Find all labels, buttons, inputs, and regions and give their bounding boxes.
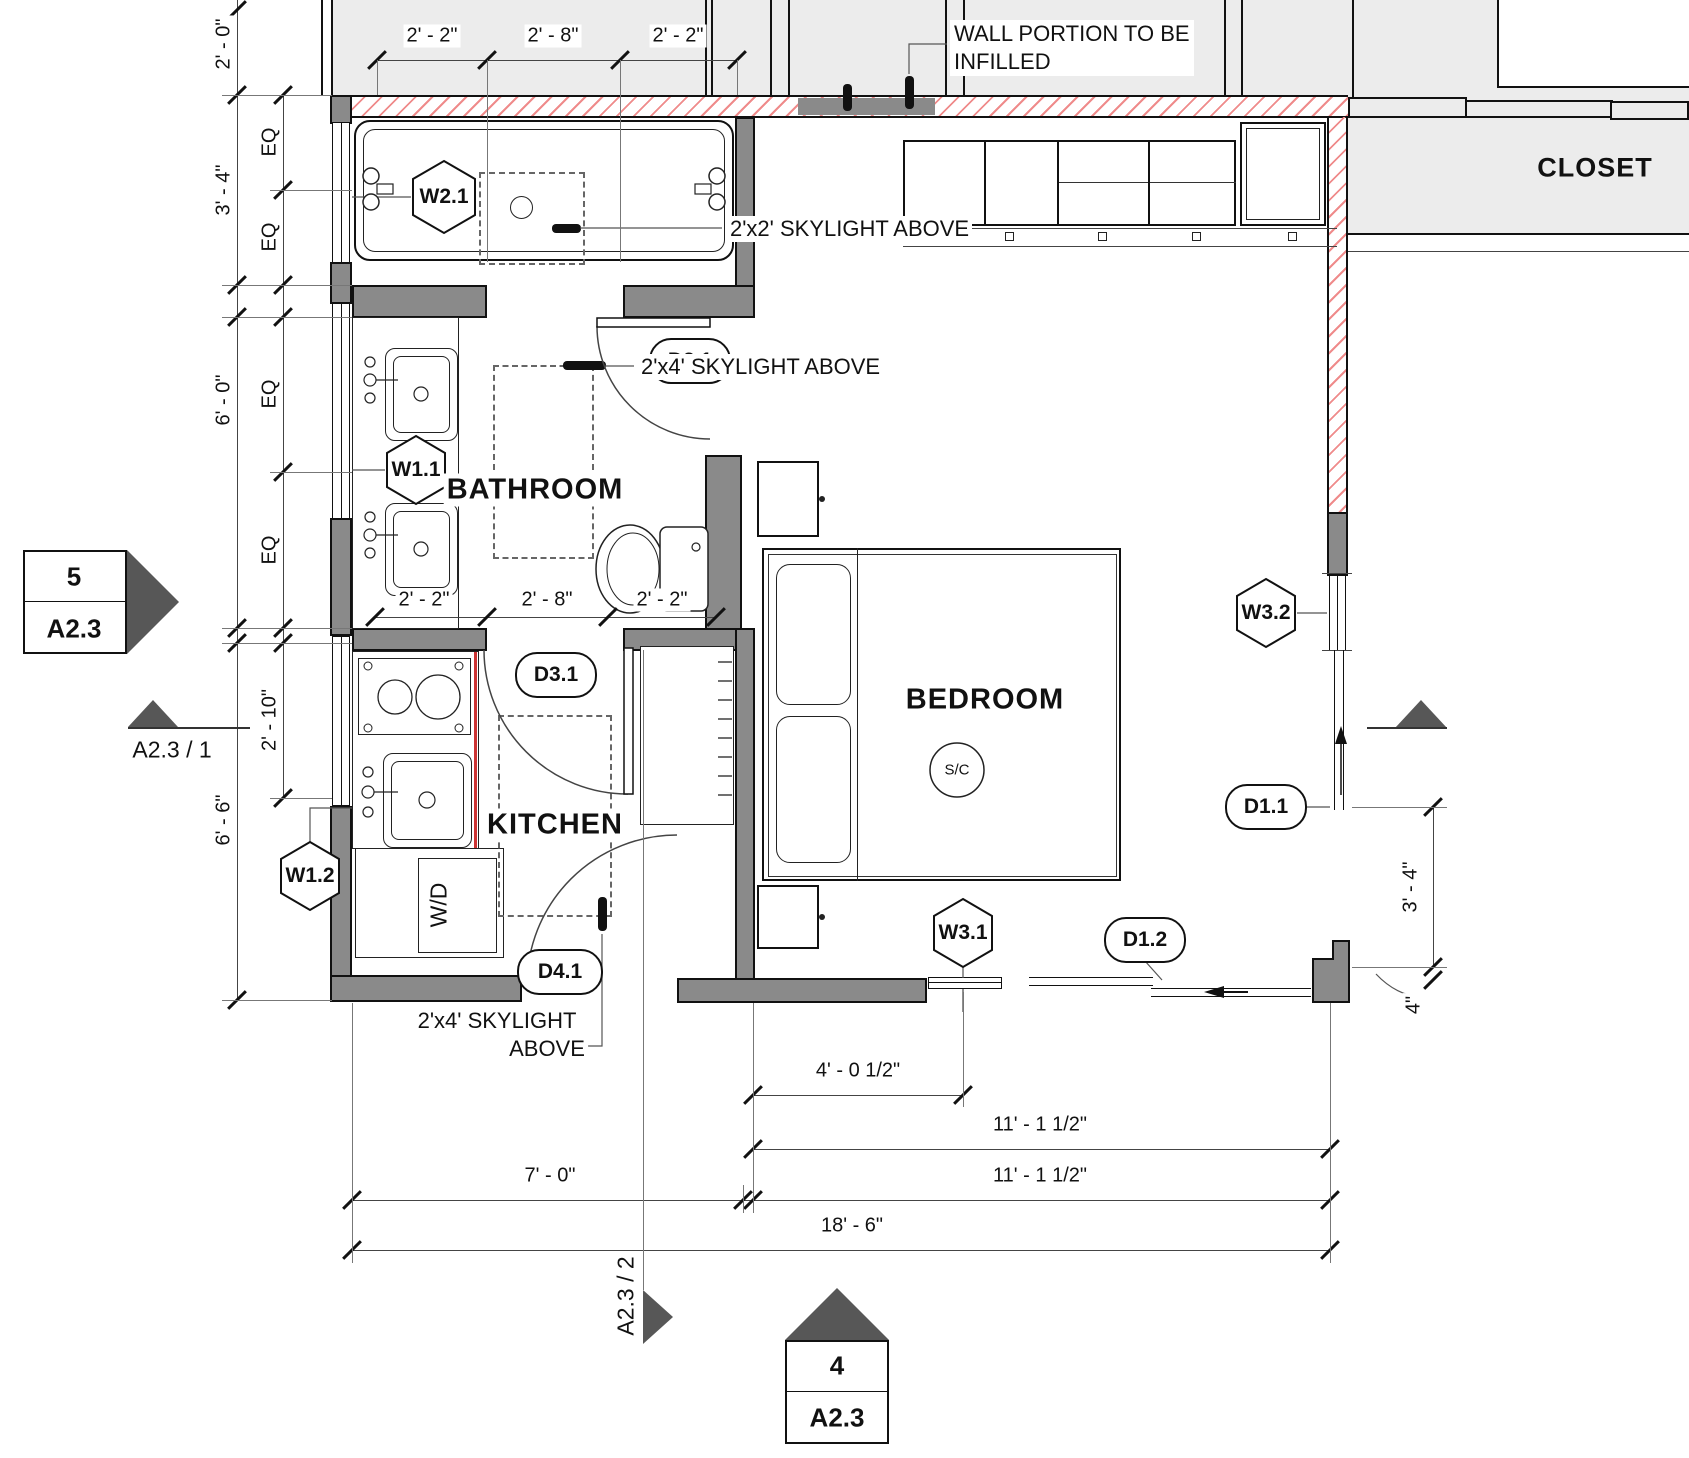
section-marker-5-sheet: A2.3 (44, 614, 105, 645)
dim-witness (743, 1185, 744, 1213)
dim-mid-0: 2' - 2" (396, 589, 453, 612)
dim-witness (620, 60, 621, 262)
nightstand-upper (757, 461, 819, 537)
leader-anchor (563, 361, 606, 370)
closet-bottom-wall (1348, 233, 1689, 235)
pillow (776, 716, 851, 863)
leader-4in (1376, 974, 1409, 995)
door-tag-d11: D1.1 (1225, 784, 1307, 830)
existing-wall-line (1241, 0, 1243, 97)
window-w21 (332, 122, 350, 263)
dim-bottom-1: 11' - 1 1/2" (990, 1114, 1090, 1137)
note-wall-infill-line2: INFILLED (954, 48, 1190, 76)
section-arrow-line (1367, 727, 1447, 729)
appliance-cabinet-inner (1246, 128, 1320, 220)
dim-top-0: 2' - 2" (404, 25, 461, 48)
room-label-bedroom: BEDROOM (903, 684, 1067, 717)
dim-witness (963, 992, 964, 1107)
dim-right-1: 4" (1403, 993, 1426, 1017)
kitchen-sink-inner (391, 761, 464, 840)
window-w32-sill (1322, 573, 1352, 574)
dim-witness (377, 60, 378, 95)
dim-bottom-3: 11' - 1 1/2" (990, 1165, 1090, 1188)
window-tag-w31: W3.1 (935, 921, 990, 945)
dim-bottom-0: 4' - 0 1/2" (813, 1060, 903, 1083)
dim-witness (222, 643, 352, 644)
counter-bracket (1005, 232, 1014, 241)
hatched-wall-right (1327, 117, 1348, 513)
right-wall-pier (1327, 512, 1348, 576)
section-marker-4-number: 4 (827, 1351, 847, 1382)
cabinet (984, 140, 1059, 226)
section-marker-divider (23, 601, 127, 602)
section-arrow-right (1395, 700, 1447, 728)
closet-wall (1610, 101, 1689, 120)
leader-anchor (552, 224, 581, 233)
dim-left-inner-3: EQ (259, 533, 282, 568)
skylight-2x4-bath-dashed (493, 365, 594, 559)
wall-infill-portion (798, 98, 935, 115)
left-wall-pier (330, 518, 352, 636)
bedroom-bottom-wall (677, 978, 927, 1003)
window-tag-w32: W3.2 (1238, 601, 1293, 625)
section-marker-a231-arrow (128, 700, 178, 727)
window-w31 (928, 977, 1002, 989)
counter-red-edge (474, 652, 477, 848)
closet-opening (1467, 100, 1613, 118)
tub-drain (510, 196, 533, 219)
dim-witness (222, 628, 352, 629)
dim-witness (753, 1003, 754, 1213)
nightstand-lower (757, 885, 819, 949)
counter-edge (903, 246, 1337, 247)
dim-witness (222, 1000, 332, 1001)
section-marker-a231-label: A2.3 / 1 (129, 737, 214, 764)
dim-witness (737, 60, 738, 95)
section-marker-5-arrow (127, 550, 179, 654)
left-wall-pier (330, 806, 352, 978)
corner-post (1312, 958, 1350, 1003)
closet-bottom-wall-line (1348, 251, 1689, 252)
existing-wall-line (711, 0, 713, 96)
existing-wall-line (945, 0, 947, 96)
dim-witness (222, 285, 352, 286)
left-wall-pier (330, 262, 352, 304)
dim-line (237, 0, 238, 1000)
door-d12-track (1029, 977, 1153, 986)
dim-line (377, 60, 737, 61)
existing-wall-line (1224, 0, 1226, 97)
door-d12-leaf (1151, 988, 1311, 997)
detector-label: S/C (941, 762, 972, 779)
dim-witness (222, 317, 352, 318)
existing-room-above (332, 0, 1348, 96)
existing-wall-line (788, 0, 790, 96)
existing-wall-line (705, 0, 707, 96)
dim-left-outer-3: 6' - 6" (213, 792, 236, 849)
dim-line (753, 1149, 1330, 1150)
cabinet (1148, 140, 1236, 226)
note-skylight-2x4-kitchen-line1: 2'x4' SKYLIGHT (415, 1008, 580, 1034)
toilet-wall (705, 455, 742, 630)
window-tag-w12: W1.2 (282, 864, 337, 888)
dim-left-outer-1: 3' - 4" (213, 162, 236, 219)
closet-wall (1348, 97, 1467, 118)
dim-witness (1352, 967, 1447, 968)
section-marker-4-arrow (785, 1288, 889, 1340)
door-tag-d41: D4.1 (517, 949, 603, 995)
floor-plan: CLOSET W/D (0, 0, 1689, 1458)
door-leaf-d21 (597, 318, 710, 327)
dim-witness (270, 190, 352, 191)
dim-top-2: 2' - 2" (650, 25, 707, 48)
dim-mid-2: 2' - 2" (634, 589, 691, 612)
section-marker-a232-arrow (643, 1290, 673, 1344)
dim-witness (222, 95, 332, 96)
door-tag-d31: D3.1 (515, 652, 597, 698)
dim-witness (270, 472, 352, 473)
dim-witness (1352, 807, 1447, 808)
wardrobe (640, 646, 734, 825)
dim-line (352, 1200, 1330, 1201)
room-label-kitchen: KITCHEN (484, 809, 626, 842)
kitchen-bottom-wall (330, 975, 522, 1002)
dim-line (1433, 807, 1434, 967)
existing-wall-line (321, 0, 323, 96)
dim-bottom-4: 18' - 6" (818, 1215, 886, 1238)
dim-left-inner-0: EQ (259, 125, 282, 160)
existing-wall-line (1352, 0, 1354, 100)
existing-wall-line (770, 0, 772, 96)
stove (358, 658, 471, 735)
cabinet (903, 140, 986, 226)
toilet-flush-button (692, 543, 700, 551)
dim-left-inner-1: EQ (259, 220, 282, 255)
dim-witness (352, 1003, 353, 1263)
window-tag-w21: W2.1 (416, 185, 471, 209)
dim-left-inner-4: 2' - 10" (259, 686, 282, 754)
window-w11 (332, 303, 350, 519)
dim-line (283, 95, 284, 798)
dim-top-1: 2' - 8" (525, 25, 582, 48)
pillow (776, 564, 851, 705)
dim-left-inner-2: EQ (259, 377, 282, 412)
bath-divider-wall-left (352, 285, 487, 318)
bed-headboard-line (857, 548, 858, 881)
room-label-closet: CLOSET (1534, 153, 1656, 184)
note-wall-infill-line1: WALL PORTION TO BE (954, 20, 1190, 48)
window-w32 (1329, 575, 1346, 651)
dim-mid-1: 2' - 8" (519, 589, 576, 612)
counter-bracket (1098, 232, 1107, 241)
section-marker-a231-line (128, 727, 250, 729)
leader-anchor (598, 897, 607, 931)
dim-witness (270, 798, 332, 799)
dim-witness (1330, 1003, 1331, 1263)
dim-line (753, 1095, 963, 1096)
exterior-notch (1497, 0, 1689, 88)
cabinet (1057, 140, 1150, 226)
bedroom-left-wall (735, 628, 755, 980)
section-marker-a232-label: A2.3 / 2 (613, 1253, 640, 1338)
section-marker-5-number: 5 (64, 562, 84, 593)
tub-bedroom-wall (735, 117, 755, 287)
section-line-a232 (643, 650, 644, 1290)
section-marker-divider (785, 1391, 889, 1392)
vanity-sink-1-inner (393, 356, 450, 433)
existing-wall-line (331, 0, 333, 96)
note-wall-infill: WALL PORTION TO BE INFILLED (950, 20, 1194, 76)
dim-witness (487, 60, 488, 262)
window-w12 (332, 636, 350, 806)
counter-bracket (1288, 232, 1297, 241)
dim-bottom-2: 7' - 0" (522, 1165, 579, 1188)
counter-bracket (1192, 232, 1201, 241)
dim-left-outer-2: 6' - 0" (213, 372, 236, 429)
left-wall-pier (330, 95, 352, 124)
nightstand-knob (819, 496, 825, 502)
dim-right-0: 3' - 4" (1400, 859, 1423, 916)
note-skylight-2x4-bath: 2'x4' SKYLIGHT ABOVE (638, 354, 883, 380)
note-skylight-2x4-kitchen-line2: ABOVE (506, 1036, 588, 1062)
leader-anchor (843, 84, 852, 111)
dim-left-outer-0: 2' - 0" (213, 16, 236, 73)
leader-anchor (905, 76, 914, 109)
section-marker-4-sheet: A2.3 (807, 1403, 868, 1434)
skylight-2x2-dashed (479, 172, 585, 265)
door-leaf-d31 (624, 648, 633, 794)
room-label-bathroom: BATHROOM (444, 474, 627, 507)
bath-divider-wall-right (623, 285, 755, 318)
kitchen-divider-wall-left (352, 628, 487, 651)
door-tag-d12: D1.2 (1104, 917, 1186, 963)
window-tag-w11: W1.1 (388, 458, 443, 482)
nightstand-knob (819, 914, 825, 920)
door-d11-panel (1334, 650, 1344, 810)
vanity-sink-2-inner (393, 511, 450, 588)
washer-dryer-label: W/D (426, 880, 453, 931)
dim-line (375, 617, 716, 618)
note-skylight-2x2: 2'x2' SKYLIGHT ABOVE (727, 216, 972, 242)
dim-line (352, 1250, 1330, 1251)
corner-post-stub (1332, 940, 1350, 960)
